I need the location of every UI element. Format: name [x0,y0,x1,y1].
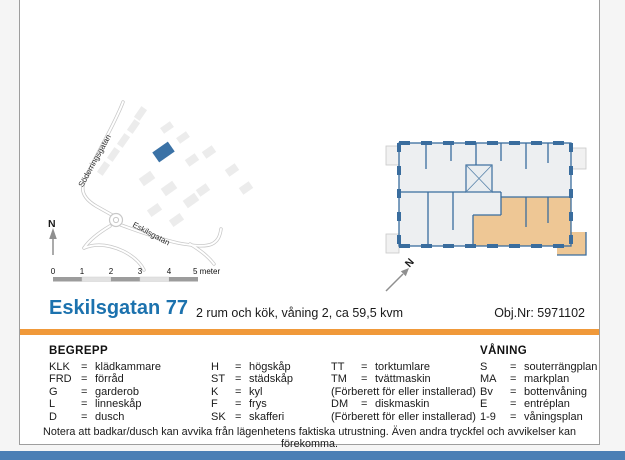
legend-term: frys [249,398,267,410]
legend-abbr: SK [211,411,235,423]
legend-eq: = [361,361,375,373]
legend-term: torktumlare [375,361,430,373]
legend-eq: = [235,386,249,398]
legend-term: diskmaskin [375,398,429,410]
street-label-secondary: Eskilsgatan [131,220,171,247]
legend-abbr: DM [331,398,361,410]
svg-text:4: 4 [167,267,172,276]
legend-term: städskåp [249,373,293,385]
location-map: Söderringsgatan Eskilsgatan N 0 1 2 3 4 … [40,98,290,293]
legend-term: högskåp [249,361,291,373]
svg-text:3: 3 [138,267,143,276]
legend-eq: = [510,361,524,373]
legend-term: kyl [249,386,262,398]
svg-text:5 meter: 5 meter [193,267,220,276]
legend-abbr: D [49,411,81,423]
legend-row: ST=städskåp [211,373,293,385]
legend-note: (Förberett för eller installerad) [331,386,476,398]
legend-row: 1-9=våningsplan [480,411,597,423]
svg-text:0: 0 [51,267,56,276]
legend-column-2: H=högskåp ST=städskåp K=kyl F=frys SK=sk… [211,361,293,423]
legend-abbr: G [49,386,81,398]
legend-eq: = [510,411,524,423]
legend-row: K=kyl [211,386,293,398]
legend-row: S=souterrängplan [480,361,597,373]
legend-column-1: KLK=klädkammare FRD=förråd G=garderob L=… [49,361,161,423]
apartment-summary: 2 rum och kök, våning 2, ca 59,5 kvm [196,306,403,320]
document-page: Söderringsgatan Eskilsgatan N 0 1 2 3 4 … [19,0,600,445]
page-title: Eskilsgatan 77 [49,297,188,320]
legend-eq: = [510,386,524,398]
legend-term: skafferi [249,411,284,423]
legend-eq: = [81,398,95,410]
legend-eq: = [235,361,249,373]
legend-row: TM=tvättmaskin [331,373,476,385]
legend-row: FRD=förråd [49,373,161,385]
legend-row: G=garderob [49,386,161,398]
legend-eq: = [81,386,95,398]
legend-term: dusch [95,411,124,423]
viewport: Söderringsgatan Eskilsgatan N 0 1 2 3 4 … [0,0,625,460]
legend-row: E=entréplan [480,398,597,410]
legend-eq: = [510,398,524,410]
legend-row: DM=diskmaskin [331,398,476,410]
map-roads [83,102,221,270]
legend-abbr: L [49,398,81,410]
legend-row: SK=skafferi [211,411,293,423]
legend-abbr: S [480,361,510,373]
legend-eq: = [81,373,95,385]
legend-term: markplan [524,373,569,385]
legend-abbr: 1-9 [480,411,510,423]
floor-legend-heading: VÅNING [480,345,527,357]
bottom-accent-bar [0,451,625,460]
legend-column-3: TT=torktumlare TM=tvättmaskin (Förberett… [331,361,476,423]
legend-eq: = [361,398,375,410]
legend-term: souterrängplan [524,361,597,373]
legend-term: bottenvåning [524,386,587,398]
map-buildings [97,106,253,227]
legend-row: KLK=klädkammare [49,361,161,373]
plan-north-arrow: N [386,256,417,291]
legend-eq: = [235,373,249,385]
legend-eq: = [81,361,95,373]
legend-note-text: (Förberett för eller installerad) [331,386,476,398]
legend-row: D=dusch [49,411,161,423]
legend-term: tvättmaskin [375,373,431,385]
floor-plan: N [378,135,618,303]
subject-building-marker [152,142,174,163]
legend-eq: = [235,411,249,423]
map-scale-bar: 0 1 2 3 4 5 meter [51,267,221,282]
legend-abbr: E [480,398,510,410]
street-label-primary: Söderringsgatan [77,133,113,189]
legend-eq: = [235,398,249,410]
legend-abbr: K [211,386,235,398]
balcony-right-top [571,148,586,169]
legend-heading: BEGREPP [49,345,108,357]
legend-abbr: ST [211,373,235,385]
legend-row: F=frys [211,398,293,410]
north-label: N [48,218,56,230]
legend-term: våningsplan [524,411,583,423]
legend-row: H=högskåp [211,361,293,373]
legend-row: L=linneskåp [49,398,161,410]
object-number: Obj.Nr: 5971102 [494,306,585,320]
svg-text:2: 2 [109,267,114,276]
north-label: N [403,256,417,270]
svg-text:1: 1 [80,267,85,276]
legend-column-4: S=souterrängplan MA=markplan Bv=bottenvå… [480,361,597,423]
legend-row: Bv=bottenvåning [480,386,597,398]
legend-term: klädkammare [95,361,161,373]
legend-note: (Förberett för eller installerad) [331,411,476,423]
disclaimer-note: Notera att badkar/dusch kan avvika från … [20,426,599,450]
legend-abbr: KLK [49,361,81,373]
accent-divider [20,329,599,335]
legend-term: garderob [95,386,139,398]
legend-abbr: MA [480,373,510,385]
stairwell [466,165,492,192]
legend-abbr: Bv [480,386,510,398]
legend-term: entréplan [524,398,570,410]
legend-abbr: F [211,398,235,410]
map-north-arrow: N [48,218,57,255]
legend-note-text: (Förberett för eller installerad) [331,411,476,423]
legend-term: linneskåp [95,398,141,410]
legend-abbr: FRD [49,373,81,385]
legend-abbr: TT [331,361,361,373]
legend-term: förråd [95,373,124,385]
legend-row: MA=markplan [480,373,597,385]
legend-abbr: TM [331,373,361,385]
legend-abbr: H [211,361,235,373]
legend-eq: = [81,411,95,423]
legend-eq: = [510,373,524,385]
legend-eq: = [361,373,375,385]
legend-row: TT=torktumlare [331,361,476,373]
